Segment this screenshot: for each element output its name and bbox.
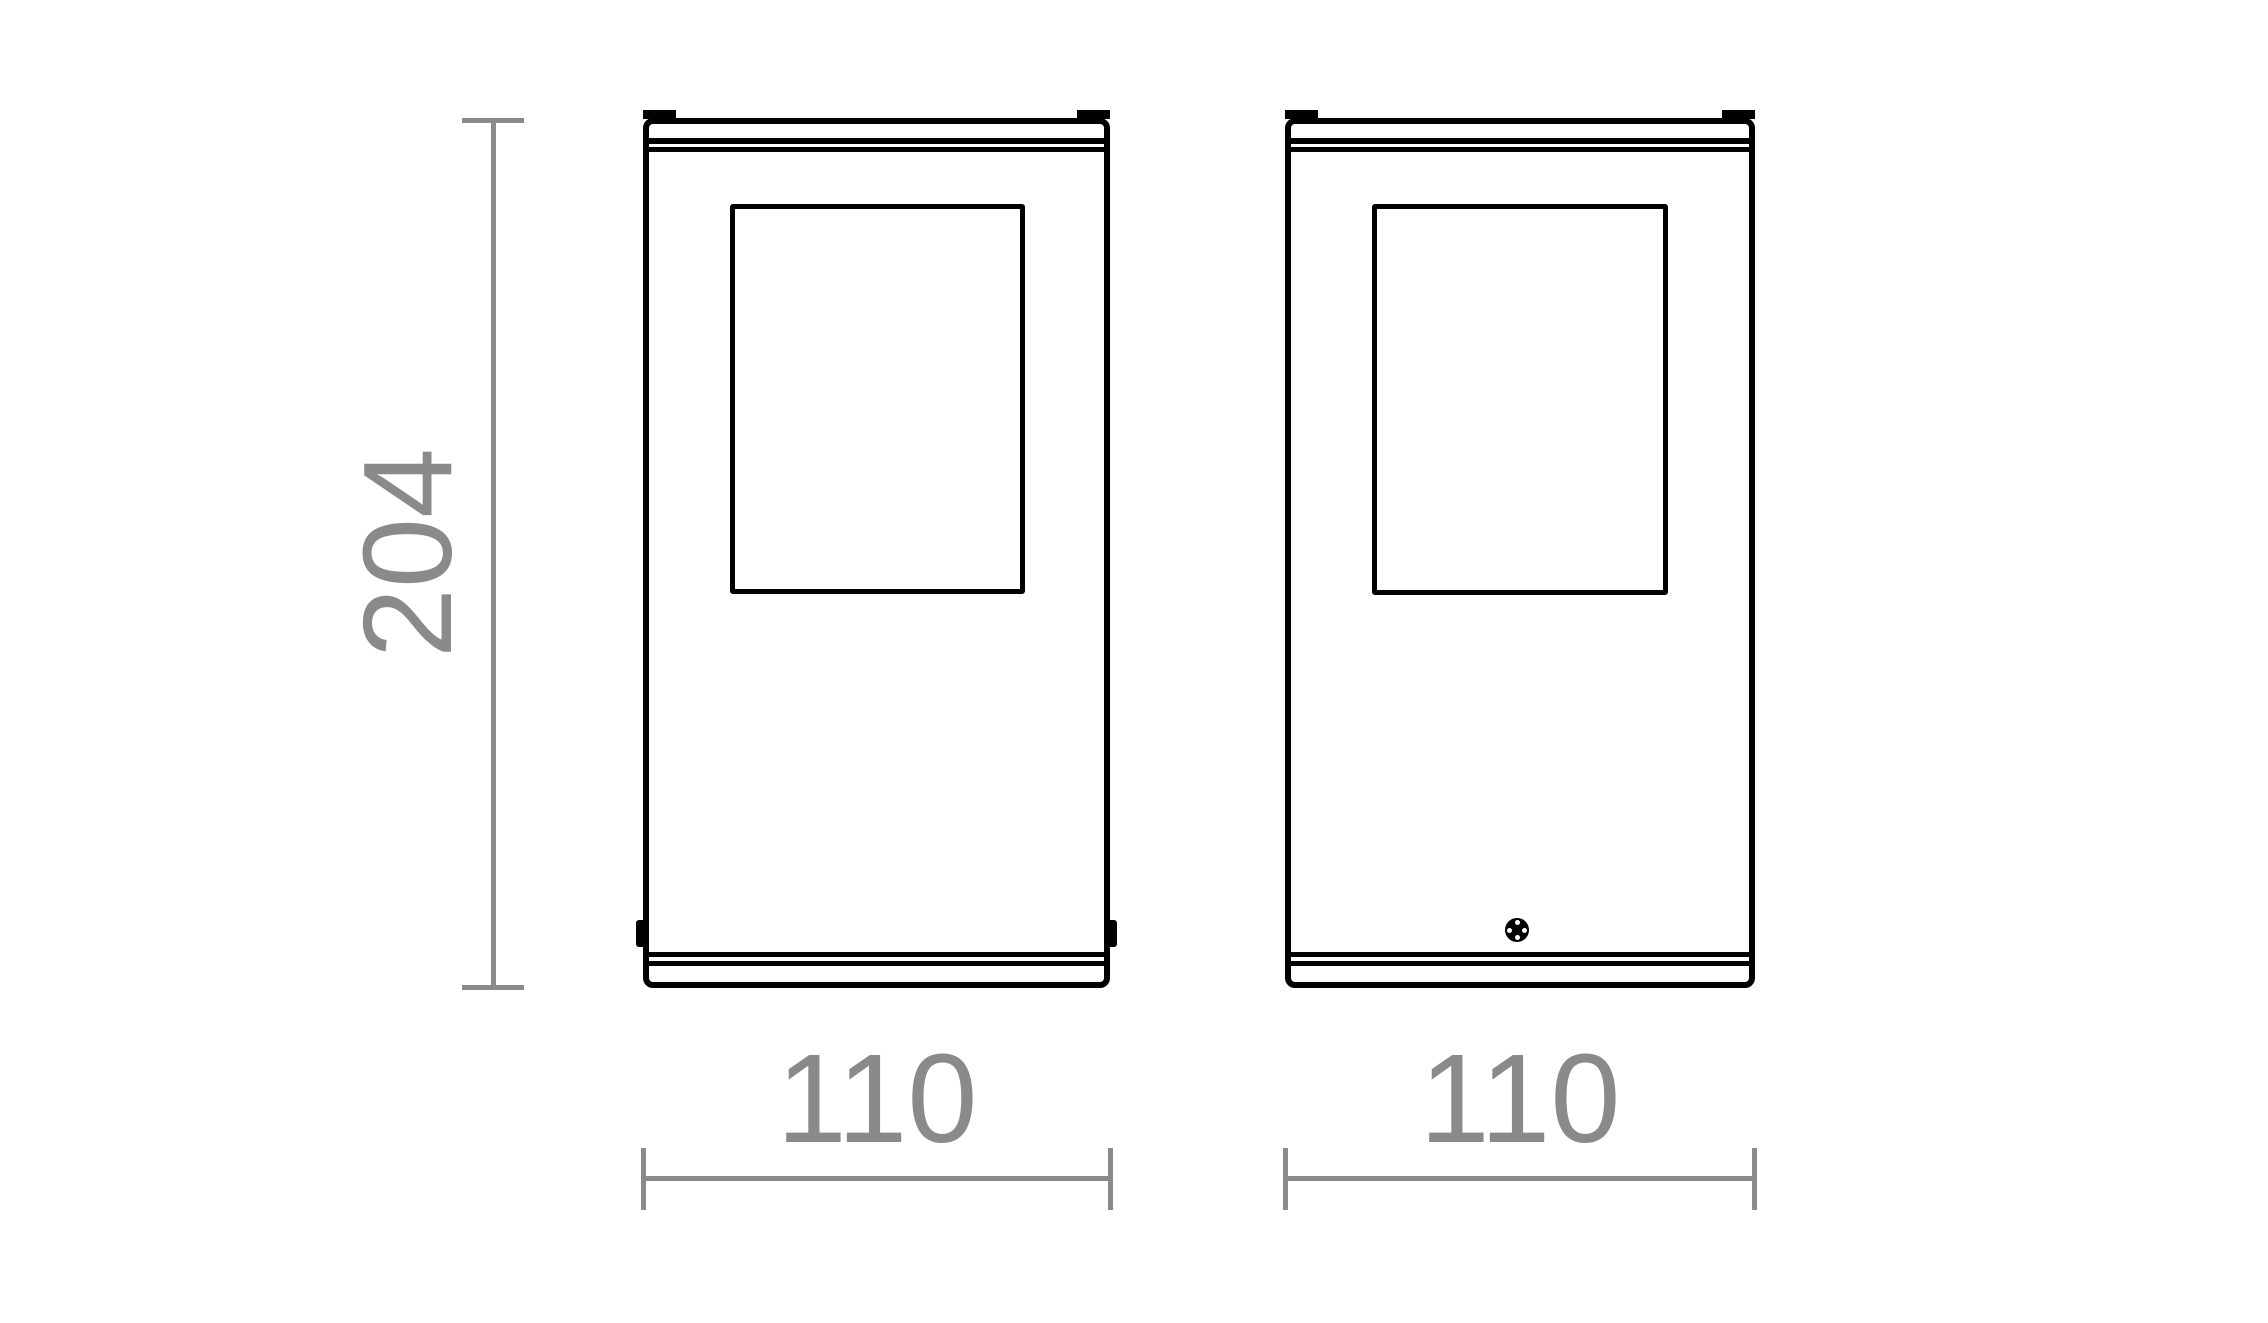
height-dimension-line — [491, 120, 496, 990]
front-base-line-upper — [649, 952, 1104, 957]
side-width-dimension-tick-right — [1752, 1148, 1757, 1210]
side-width-dimension-line — [1285, 1176, 1755, 1181]
height-dimension-tick-bottom — [462, 985, 524, 990]
technical-drawing-canvas: 204 110 1 — [0, 0, 2268, 1323]
side-base-line-upper — [1291, 952, 1749, 957]
screw-icon — [1505, 918, 1529, 942]
front-base-line-lower — [649, 961, 1104, 966]
front-side-tab-right — [1107, 920, 1117, 947]
side-cap-line-upper — [1291, 138, 1749, 144]
height-dimension-label: 204 — [345, 403, 471, 703]
front-width-dimension-line — [643, 1176, 1111, 1181]
screw-notch — [1522, 928, 1527, 933]
screw-notch — [1507, 928, 1512, 933]
side-cap-line-lower — [1291, 147, 1749, 152]
front-cap-line-lower — [649, 147, 1104, 152]
front-width-dimension-tick-left — [641, 1148, 646, 1210]
front-width-dimension-tick-right — [1108, 1148, 1113, 1210]
front-side-tab-left — [636, 920, 646, 947]
side-width-dimension-label: 110 — [1370, 1036, 1670, 1162]
screw-notch — [1515, 935, 1520, 940]
side-lamp-window — [1372, 204, 1668, 595]
side-base-line-lower — [1291, 961, 1749, 966]
front-cap-line-upper — [649, 138, 1104, 144]
side-width-dimension-tick-left — [1283, 1148, 1288, 1210]
screw-notch — [1515, 920, 1520, 925]
front-width-dimension-label: 110 — [727, 1036, 1027, 1162]
height-dimension-tick-top — [462, 118, 524, 123]
front-lamp-window — [730, 204, 1025, 594]
